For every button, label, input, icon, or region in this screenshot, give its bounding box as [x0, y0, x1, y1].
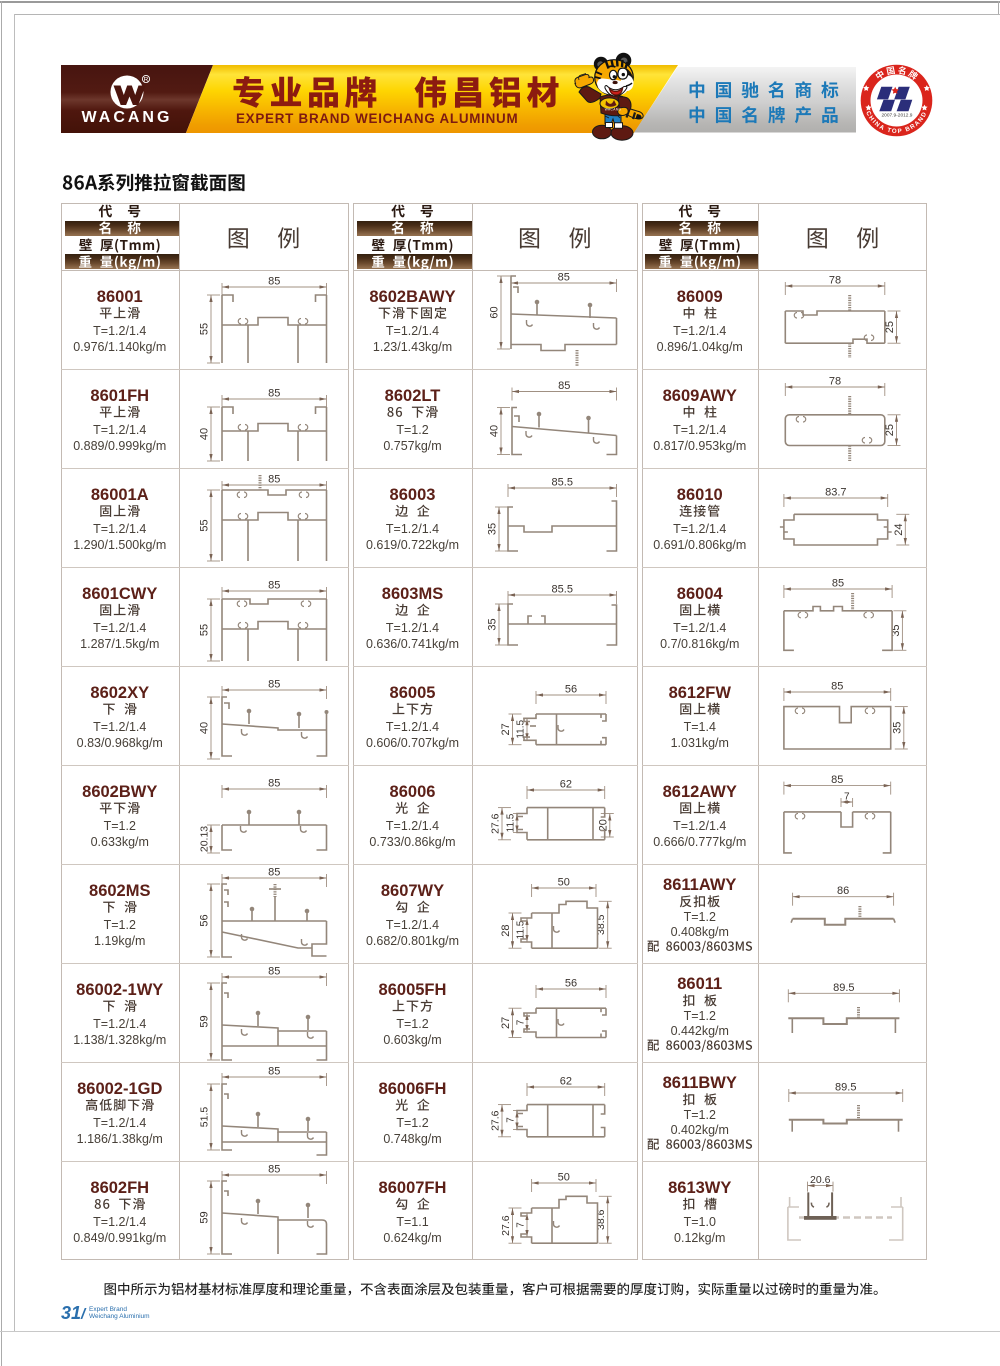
svg-text:25: 25 — [884, 424, 896, 436]
svg-text:40: 40 — [489, 425, 501, 437]
svg-text:7: 7 — [506, 1117, 517, 1123]
svg-text:85.5: 85.5 — [552, 477, 573, 489]
svg-text:85: 85 — [831, 681, 843, 693]
svg-text:55: 55 — [198, 323, 210, 335]
svg-text:89.5: 89.5 — [833, 982, 854, 994]
svg-text:85: 85 — [832, 578, 844, 590]
svg-text:85: 85 — [268, 1164, 280, 1176]
svg-text:R: R — [144, 77, 149, 84]
svg-text:11.5: 11.5 — [516, 920, 527, 939]
svg-text:20: 20 — [597, 819, 609, 831]
svg-text:20.13: 20.13 — [198, 826, 210, 852]
svg-text:27: 27 — [500, 723, 512, 735]
svg-text:40: 40 — [198, 722, 210, 734]
svg-text:27.6: 27.6 — [500, 1215, 512, 1236]
svg-text:7: 7 — [516, 1019, 527, 1025]
svg-text:27.6: 27.6 — [490, 814, 502, 835]
svg-text:2007.9-2012.9: 2007.9-2012.9 — [882, 113, 913, 119]
svg-text:56: 56 — [565, 978, 577, 990]
svg-text:85: 85 — [268, 276, 280, 288]
svg-text:55: 55 — [198, 624, 210, 636]
svg-text:24: 24 — [893, 524, 905, 536]
svg-text:60: 60 — [489, 307, 501, 319]
svg-text:35: 35 — [891, 722, 903, 734]
svg-text:59: 59 — [198, 1016, 210, 1028]
svg-text:25: 25 — [884, 321, 896, 333]
svg-text:35: 35 — [487, 619, 499, 631]
svg-text:50: 50 — [558, 1172, 570, 1184]
svg-text:59: 59 — [198, 1212, 210, 1224]
svg-text:27: 27 — [500, 1017, 512, 1029]
svg-text:89.5: 89.5 — [835, 1082, 856, 1094]
svg-text:78: 78 — [829, 376, 841, 388]
svg-text:85: 85 — [268, 474, 280, 486]
svg-text:56: 56 — [565, 684, 577, 696]
svg-text:85.5: 85.5 — [552, 584, 573, 596]
svg-text:85: 85 — [831, 774, 843, 786]
svg-text:85: 85 — [268, 580, 280, 592]
svg-text:85: 85 — [558, 380, 570, 392]
svg-text:7: 7 — [516, 1222, 527, 1228]
svg-text:85: 85 — [268, 388, 280, 400]
svg-text:62: 62 — [560, 779, 572, 791]
svg-text:50: 50 — [558, 877, 570, 889]
svg-text:40: 40 — [198, 428, 210, 440]
svg-text:20.6: 20.6 — [810, 1174, 831, 1186]
svg-text:85: 85 — [268, 966, 280, 978]
svg-text:78: 78 — [829, 275, 841, 287]
svg-text:62: 62 — [560, 1076, 572, 1088]
svg-text:11.5: 11.5 — [516, 720, 527, 739]
svg-text:85: 85 — [558, 272, 570, 284]
svg-text:85: 85 — [268, 1066, 280, 1078]
svg-text:83.7: 83.7 — [825, 487, 846, 499]
svg-text:85: 85 — [268, 679, 280, 691]
svg-text:27.6: 27.6 — [490, 1111, 502, 1132]
svg-text:51.5: 51.5 — [198, 1107, 210, 1128]
svg-text:55: 55 — [198, 520, 210, 532]
svg-text:85: 85 — [268, 867, 280, 879]
svg-text:WACANG: WACANG — [605, 108, 622, 112]
svg-text:56: 56 — [198, 915, 210, 927]
svg-text:7: 7 — [844, 792, 850, 803]
svg-text:11.5: 11.5 — [506, 813, 517, 832]
svg-text:28: 28 — [500, 925, 512, 937]
svg-text:85: 85 — [268, 778, 280, 790]
svg-text:86: 86 — [837, 885, 849, 897]
svg-text:35: 35 — [487, 523, 499, 535]
